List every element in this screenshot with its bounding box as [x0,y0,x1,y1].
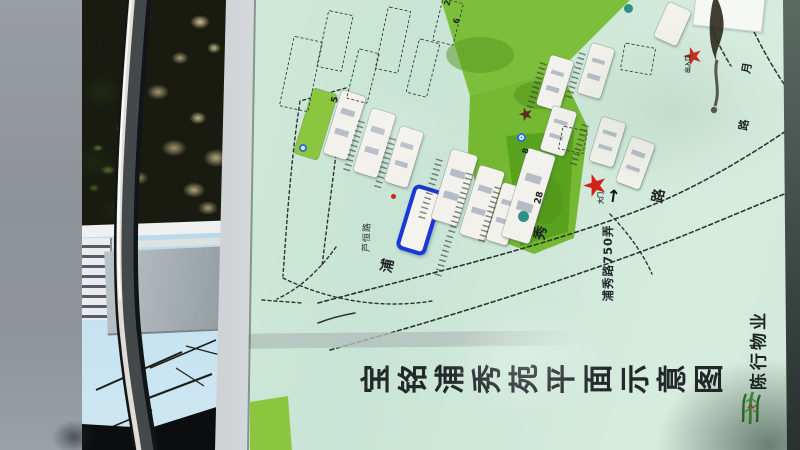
chrome-pole [0,0,800,450]
photographed-map-sign: ★★★★↑582826浦秀路江月路大门出入口 宝铭浦秀苑平面示意图 陈行物业 浦… [0,0,800,450]
